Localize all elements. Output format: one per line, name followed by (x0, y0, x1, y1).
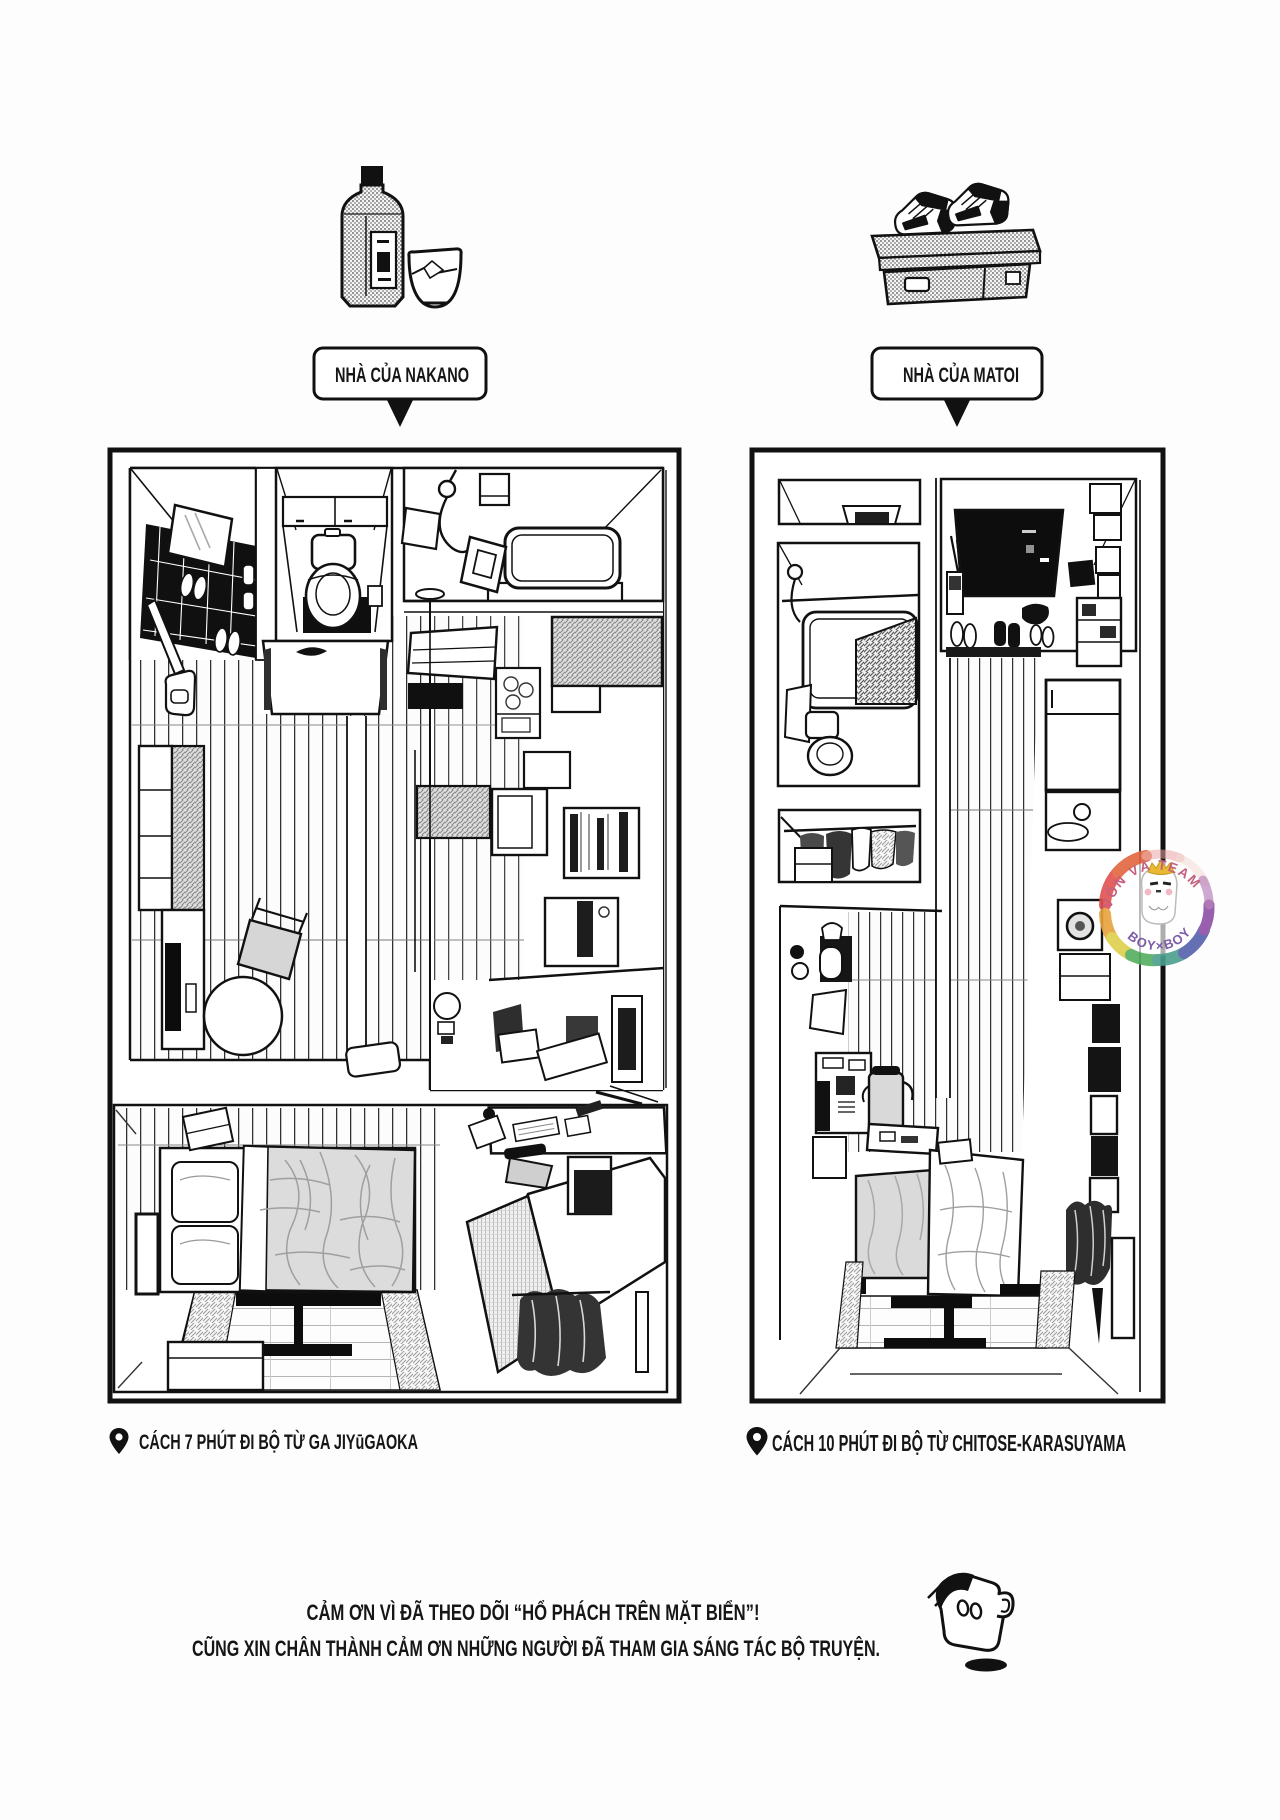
svg-text:CẢM ƠN VÌ ĐÃ THEO DÕI “HỔ PHÁC: CẢM ƠN VÌ ĐÃ THEO DÕI “HỔ PHÁCH TRÊN MẶT… (307, 1600, 760, 1625)
svg-text:NHÀ CỦA MATOI: NHÀ CỦA MATOI (903, 363, 1019, 387)
svg-text:NHÀ CỦA NAKANO: NHÀ CỦA NAKANO (335, 363, 469, 387)
svg-text:CŨNG XIN CHÂN THÀNH CẢM ƠN NHỮ: CŨNG XIN CHÂN THÀNH CẢM ƠN NHỮNG NGƯỜI Đ… (192, 1636, 880, 1661)
svg-text:CÁCH 7 PHÚT ĐI BỘ TỪ GA JIYūGA: CÁCH 7 PHÚT ĐI BỘ TỪ GA JIYūGAOKA (139, 1430, 418, 1454)
svg-text:CÁCH 10 PHÚT ĐI BỘ TỪ CHITOSE-: CÁCH 10 PHÚT ĐI BỘ TỪ CHITOSE-KARASUYAMA (772, 1429, 1126, 1456)
